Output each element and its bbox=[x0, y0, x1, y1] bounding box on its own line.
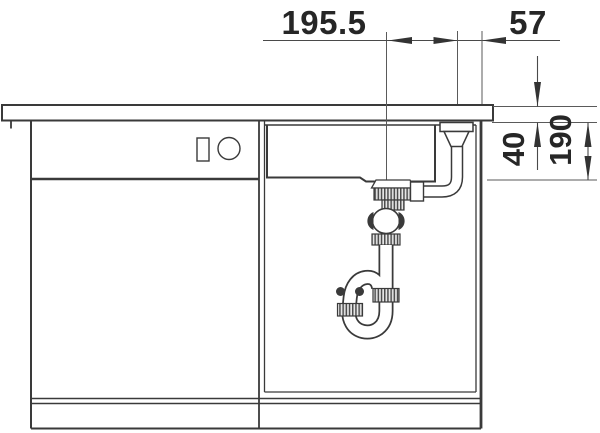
arrow-dim190-bottom bbox=[585, 156, 592, 180]
strainer-flange bbox=[372, 180, 415, 188]
arrow-dim190-top bbox=[585, 123, 592, 148]
overflow-funnel-flange bbox=[440, 123, 473, 132]
overflow-funnel-taper bbox=[444, 132, 469, 147]
strainer-ball bbox=[373, 209, 400, 234]
dim-label-40: 40 bbox=[498, 124, 530, 174]
arrow-dim40-top bbox=[534, 82, 541, 107]
strainer-coupling-ring bbox=[372, 234, 400, 245]
trap-nut-bump-right bbox=[355, 287, 364, 296]
sink-bowl bbox=[267, 125, 435, 182]
arrow-dim40-bottom bbox=[534, 123, 541, 148]
front-panel-rect-symbol bbox=[197, 138, 209, 161]
front-panel-circle-symbol bbox=[218, 138, 240, 160]
dim-label-190: 190 bbox=[545, 106, 579, 174]
arrow-dim57-left bbox=[434, 37, 458, 44]
strainer-nut-left bbox=[367, 212, 373, 230]
trap-nut-bump-left bbox=[336, 287, 345, 296]
arrow-dim195-right bbox=[388, 37, 412, 44]
dim-label-57: 57 bbox=[502, 6, 554, 39]
outlet-pipe-coupling bbox=[411, 182, 424, 201]
technical-drawing: 195.5 57 40 190 bbox=[0, 0, 600, 433]
strainer-knurl-ring bbox=[374, 188, 414, 200]
worktop bbox=[2, 105, 493, 121]
strainer-nut-right bbox=[399, 212, 405, 230]
drawing-canvas bbox=[0, 0, 600, 433]
trap-coupling-upper bbox=[373, 289, 399, 303]
dim-label-195-5: 195.5 bbox=[266, 6, 382, 39]
trap-coupling-lower bbox=[338, 304, 363, 317]
